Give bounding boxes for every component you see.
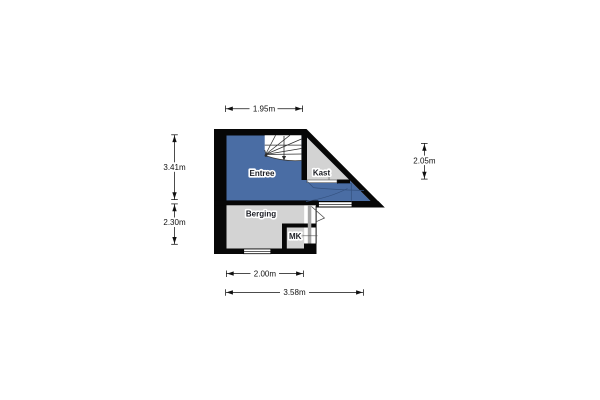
svg-text:2.05m: 2.05m bbox=[413, 156, 436, 165]
svg-text:3.58m: 3.58m bbox=[283, 288, 306, 297]
svg-text:Kast: Kast bbox=[313, 169, 331, 178]
svg-text:1.95m: 1.95m bbox=[253, 105, 276, 114]
svg-text:2.00m: 2.00m bbox=[254, 270, 277, 279]
svg-text:Entree: Entree bbox=[250, 169, 275, 178]
svg-text:MK: MK bbox=[289, 232, 302, 241]
svg-text:Berging: Berging bbox=[246, 210, 276, 219]
svg-text:2.30m: 2.30m bbox=[163, 218, 186, 227]
svg-text:3.41m: 3.41m bbox=[163, 163, 186, 172]
